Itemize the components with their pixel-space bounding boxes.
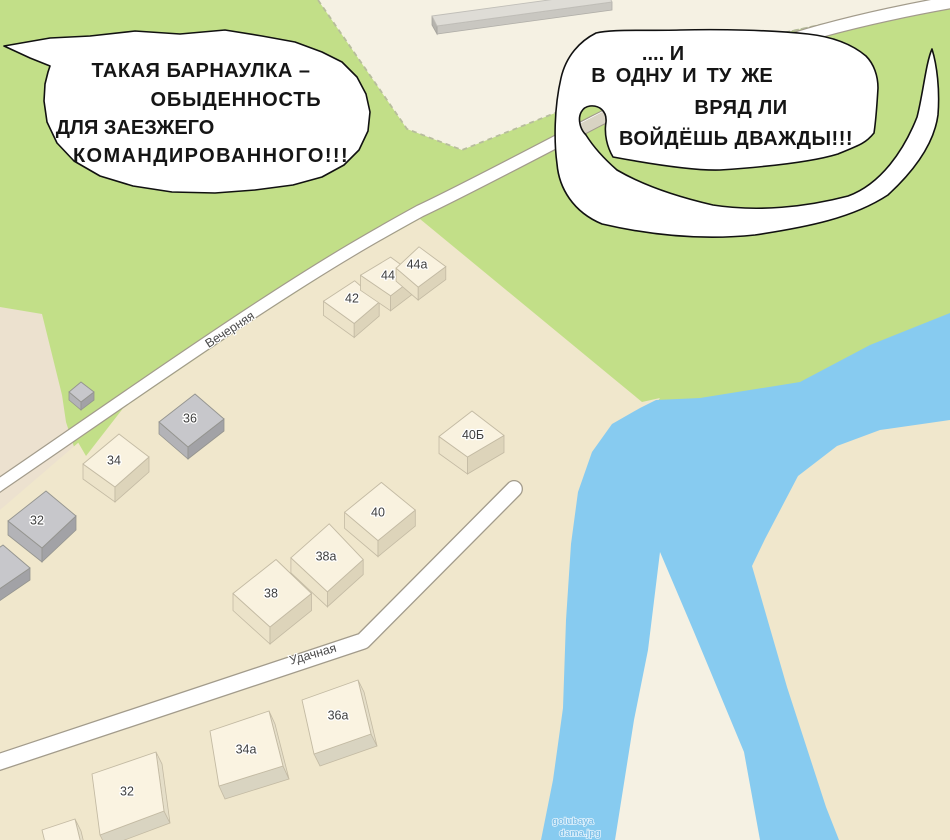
svg-text:36а: 36а [328,709,349,723]
svg-text:44а: 44а [407,258,428,272]
svg-text:ОБЫДЕННОСТЬ: ОБЫДЕННОСТЬ [151,89,322,111]
svg-text:dama.jpg: dama.jpg [559,828,601,839]
svg-text:34а: 34а [236,743,257,757]
svg-text:32: 32 [30,514,44,528]
svg-text:КОМАНДИРОВАННОГО!!!: КОМАНДИРОВАННОГО!!! [73,145,349,167]
svg-text:40: 40 [371,506,385,520]
svg-text:.... И: .... И [642,43,684,65]
svg-text:32: 32 [120,785,134,799]
svg-text:34: 34 [107,454,121,468]
svg-text:В ОДНУ И ТУ ЖЕ: В ОДНУ И ТУ ЖЕ [591,65,773,87]
svg-text:38а: 38а [316,550,337,564]
svg-text:40Б: 40Б [462,428,484,442]
svg-text:42: 42 [345,292,359,306]
svg-text:ВОЙДЁШЬ ДВАЖДЫ!!!: ВОЙДЁШЬ ДВАЖДЫ!!! [619,126,853,150]
svg-text:ДЛЯ ЗАЕЗЖЕГО: ДЛЯ ЗАЕЗЖЕГО [56,117,215,139]
svg-text:44: 44 [381,269,395,283]
svg-text:golubaya: golubaya [552,816,594,827]
svg-text:ВРЯД ЛИ: ВРЯД ЛИ [694,97,787,119]
svg-text:36: 36 [183,412,197,426]
svg-text:38: 38 [264,587,278,601]
svg-text:ТАКАЯ БАРНАУЛКА –: ТАКАЯ БАРНАУЛКА – [91,60,310,82]
